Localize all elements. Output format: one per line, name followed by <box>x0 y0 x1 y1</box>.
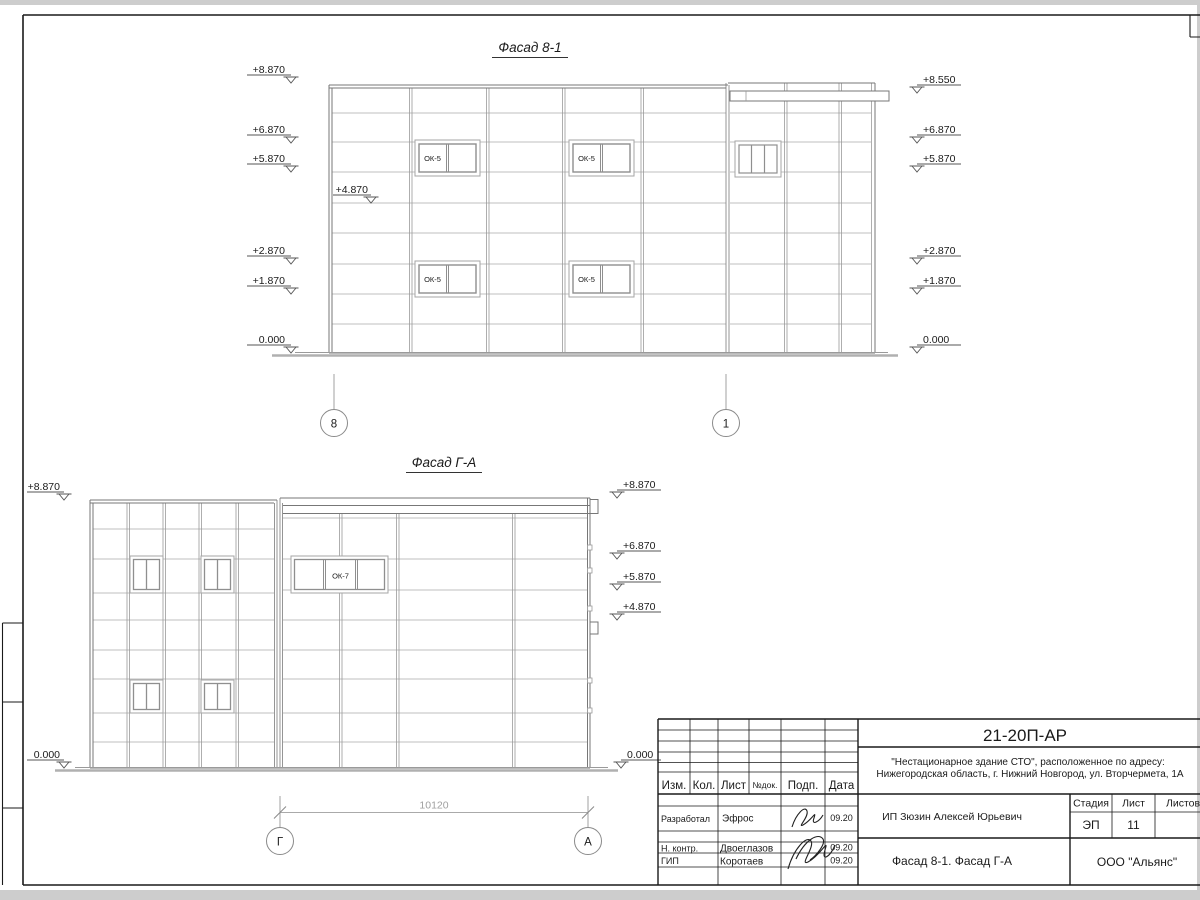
canopy-end-cap <box>590 500 598 514</box>
elevation-value: +6.870 <box>923 124 956 136</box>
elevation-value: +2.870 <box>923 245 956 257</box>
window-small-upper-1 <box>130 556 163 593</box>
window-label: ОК-5 <box>578 275 595 284</box>
document-number: 21-20П-АР <box>983 726 1067 745</box>
col-podp: Подп. <box>788 780 819 792</box>
sheet-number: 11 <box>1127 818 1140 832</box>
col-list: Лист <box>721 780 747 792</box>
elevation-value: +5.870 <box>923 153 956 165</box>
window-ok5-1: ОК-5 <box>415 140 480 176</box>
role-name: Коротаев <box>720 857 763 868</box>
window-small-lower-2 <box>201 680 234 713</box>
company-name: ООО "Альянс" <box>1097 855 1177 869</box>
project-description-line2: Нижегородская область, г. Нижний Новгоро… <box>876 768 1184 780</box>
sheets-label: Листов <box>1166 798 1200 810</box>
window-label: ОК-5 <box>424 275 441 284</box>
axis-label-g: Г <box>277 837 284 849</box>
elevation-value: +8.870 <box>28 481 61 493</box>
window-small-upper-2 <box>201 556 234 593</box>
facade1-title: Фасад 8-1 <box>498 40 561 55</box>
window-ok5-2: ОК-5 <box>569 140 634 176</box>
window-label: ОК-5 <box>578 154 595 163</box>
drawing-viewer: Фасад 8-1 ОК-5 ОК-5 ОК-5 <box>0 0 1200 900</box>
client-name: ИП Зюзин Алексей Юрьевич <box>882 811 1022 823</box>
axis-label-1: 1 <box>723 419 729 431</box>
col-izm: Изм. <box>662 780 687 792</box>
col-kol: Кол. <box>693 780 716 792</box>
col-ndok: №док. <box>753 780 778 790</box>
elevation-value: 0.000 <box>923 334 949 346</box>
role-date: 09.20 <box>830 813 853 823</box>
sheet-title: Фасад 8-1. Фасад Г-А <box>892 854 1012 868</box>
elevation-value: +5.870 <box>623 571 656 583</box>
dimension-value: 10120 <box>419 800 448 812</box>
elevation-value: +4.870 <box>336 184 369 196</box>
facade2-title: Фасад Г-А <box>412 455 477 470</box>
window-ok7: ОК-7 <box>291 556 388 593</box>
elevation-value: +8.870 <box>253 64 286 76</box>
elevation-value: +5.870 <box>253 153 286 165</box>
elevation-value: +6.870 <box>253 124 286 136</box>
elevation-value: +8.870 <box>623 479 656 491</box>
window-ok5-4: ОК-5 <box>569 261 634 297</box>
drawing-sheet: Фасад 8-1 ОК-5 ОК-5 ОК-5 <box>0 0 1200 900</box>
axis-label-a: А <box>584 837 592 849</box>
role-label: Разработал <box>661 814 710 824</box>
role-name: Двоеглазов <box>720 844 773 855</box>
window-stair-block <box>735 141 781 177</box>
window-ok5-3: ОК-5 <box>415 261 480 297</box>
stage-label: Стадия <box>1073 798 1109 810</box>
stage-value: ЭП <box>1082 818 1099 832</box>
elevation-value: +8.550 <box>923 74 956 86</box>
elevation-value: +4.870 <box>623 601 656 613</box>
role-label: ГИП <box>661 856 679 866</box>
sheet-label: Лист <box>1122 798 1145 810</box>
role-date: 09.20 <box>830 856 853 866</box>
elevation-value: 0.000 <box>259 334 285 346</box>
role-label: Н. контр. <box>661 844 698 854</box>
elevation-value: 0.000 <box>627 749 653 761</box>
elevation-value: +1.870 <box>253 275 286 287</box>
elevation-value: 0.000 <box>34 749 60 761</box>
col-data: Дата <box>829 780 855 792</box>
elevation-value: +6.870 <box>623 540 656 552</box>
window-small-lower-1 <box>130 680 163 713</box>
elevation-value: +1.870 <box>923 275 956 287</box>
wall-bracket <box>590 622 598 634</box>
window-label: ОК-7 <box>332 572 349 581</box>
axis-label-8: 8 <box>331 419 337 431</box>
role-name: Эфрос <box>722 813 754 825</box>
window-label: ОК-5 <box>424 154 441 163</box>
canopy <box>730 91 889 101</box>
project-description-line1: "Нестационарное здание СТО", расположенн… <box>891 757 1164 768</box>
elevation-value: +2.870 <box>253 245 286 257</box>
